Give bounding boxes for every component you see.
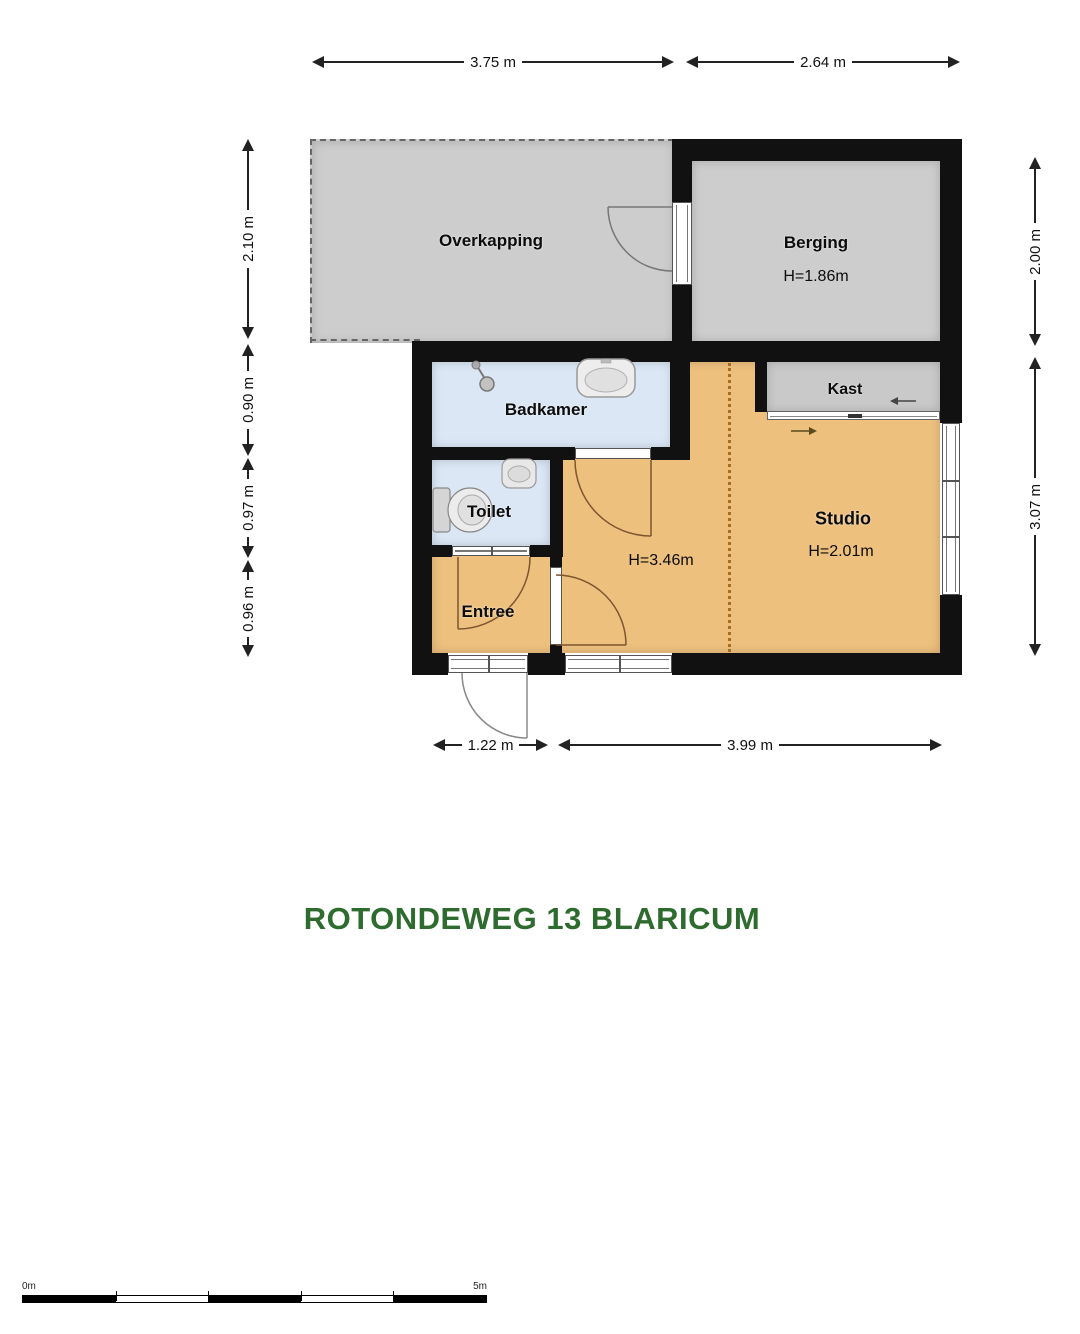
wall — [550, 645, 562, 653]
scale-start-label: 0m — [22, 1281, 36, 1292]
arrow-left-icon — [312, 56, 324, 68]
arrow-right-icon — [930, 739, 942, 751]
arrow-down-icon — [242, 327, 254, 339]
scale-bar: 0m 5m — [22, 1281, 487, 1307]
studio-left-height-label: H=3.46m — [628, 552, 693, 570]
wall — [432, 447, 575, 460]
badkamer-door-frame — [575, 448, 651, 459]
studio-zone-divider — [728, 363, 731, 652]
dimension-right-2-00: 2.00 m — [1020, 157, 1050, 346]
dimension-left-0-96: 0.96 m — [233, 560, 263, 657]
dimension-top-left: 3.75 m — [312, 54, 674, 70]
studio-label: Studio — [815, 509, 871, 530]
arrow-up-icon — [242, 458, 254, 470]
arrow-up-icon — [242, 560, 254, 572]
wall — [432, 545, 452, 557]
wall — [755, 362, 767, 412]
wall — [672, 139, 692, 202]
wall — [550, 460, 563, 557]
wall — [412, 341, 962, 362]
dimension-label: 0.97 m — [240, 479, 257, 537]
arrow-down-icon — [242, 546, 254, 558]
berging-height-label: H=1.86m — [783, 268, 848, 286]
wall — [940, 362, 962, 423]
toilet-label: Toilet — [467, 502, 511, 522]
arrow-right-icon — [662, 56, 674, 68]
wall — [940, 139, 962, 363]
arrow-right-icon — [948, 56, 960, 68]
arrow-up-icon — [242, 344, 254, 356]
kast-sliding-door-rail — [767, 411, 940, 420]
dimension-label: 3.99 m — [721, 737, 779, 754]
dimension-left-2-10: 2.10 m — [233, 139, 263, 339]
arrow-left-icon — [686, 56, 698, 68]
overkapping-dashed-bottom-edge — [310, 339, 420, 341]
arrow-down-icon — [242, 645, 254, 657]
berging-label: Berging — [784, 233, 848, 253]
arrow-down-icon — [242, 444, 254, 456]
arrow-up-icon — [1029, 357, 1041, 369]
wall — [530, 545, 563, 557]
entree-label: Entree — [462, 602, 515, 622]
wall — [670, 362, 690, 460]
overkapping-label: Overkapping — [439, 231, 543, 251]
arrow-left-icon — [558, 739, 570, 751]
dimension-bottom-left: 1.22 m — [433, 737, 548, 753]
wall — [672, 653, 962, 675]
address-title: ROTONDEWEG 13 BLARICUM — [0, 901, 1064, 937]
wall — [672, 139, 962, 161]
arrow-right-icon — [536, 739, 548, 751]
dimension-left-0-90: 0.90 m — [233, 344, 263, 456]
studio-height-label: H=2.01m — [808, 543, 873, 561]
wall — [528, 653, 565, 675]
front-door-frame — [448, 655, 528, 673]
toilet-door-frame — [452, 546, 530, 556]
dimension-label: 3.75 m — [464, 54, 522, 71]
badkamer-label: Badkamer — [505, 400, 587, 420]
bottom-window — [565, 655, 672, 673]
dimension-label: 2.00 m — [1027, 223, 1044, 281]
arrow-up-icon — [242, 139, 254, 151]
kast-label: Kast — [828, 381, 863, 399]
scale-end-label: 5m — [473, 1281, 487, 1292]
right-window — [942, 423, 960, 595]
dimension-label: 0.90 m — [240, 371, 257, 429]
dimension-label: 2.10 m — [240, 210, 257, 268]
dimension-right-3-07: 3.07 m — [1020, 357, 1050, 656]
arrow-down-icon — [1029, 334, 1041, 346]
dimension-label: 2.64 m — [794, 54, 852, 71]
door-swing-arc — [462, 673, 527, 738]
wall — [550, 557, 562, 567]
arrow-left-icon — [433, 739, 445, 751]
window-divider — [943, 480, 959, 482]
dimension-label: 0.96 m — [240, 580, 257, 638]
dimension-label: 3.07 m — [1027, 478, 1044, 536]
entree-studio-door-frame — [550, 567, 562, 645]
berging-door-frame — [672, 202, 692, 285]
wall — [412, 653, 448, 675]
scale-bar-segments — [22, 1295, 487, 1303]
sliding-door-handle — [848, 414, 862, 418]
dimension-bottom-right: 3.99 m — [558, 737, 942, 753]
window-divider — [943, 536, 959, 538]
wall — [412, 341, 432, 675]
dimension-label: 1.22 m — [462, 737, 520, 754]
wall — [651, 447, 690, 460]
arrow-up-icon — [1029, 157, 1041, 169]
floorplan-canvas: Overkapping Berging H=1.86m Badkamer Toi… — [0, 0, 1080, 1334]
dimension-top-right: 2.64 m — [686, 54, 960, 70]
dimension-left-0-97: 0.97 m — [233, 458, 263, 558]
arrow-down-icon — [1029, 644, 1041, 656]
